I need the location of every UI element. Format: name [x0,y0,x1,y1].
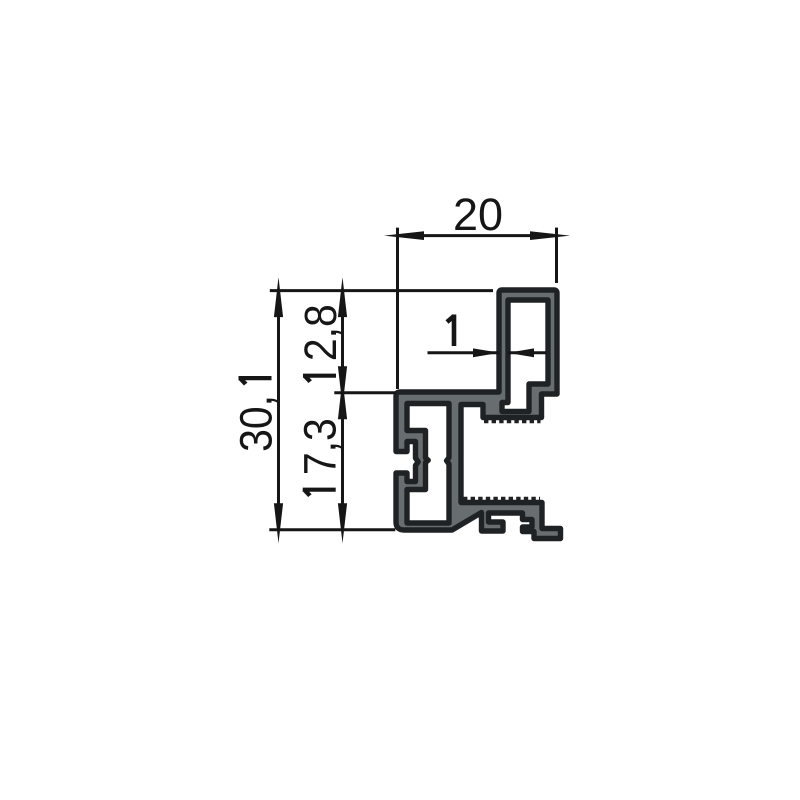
svg-text:30,: 30, [232,395,282,452]
svg-text:7,3: 7,3 [296,418,346,475]
svg-text:20: 20 [453,189,503,240]
svg-text:2,8: 2,8 [296,304,346,361]
